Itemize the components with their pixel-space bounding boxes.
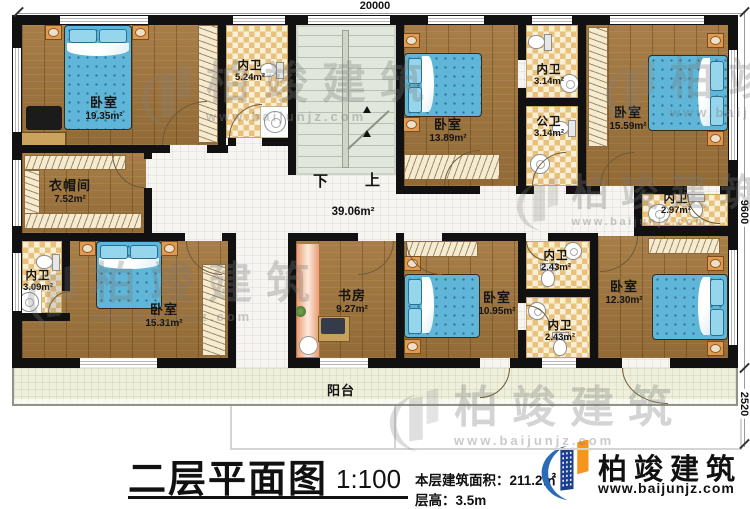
closet bbox=[648, 238, 720, 254]
dimension-line bbox=[744, 13, 745, 447]
bed bbox=[404, 274, 480, 338]
wall-segment bbox=[518, 233, 526, 303]
room-label-bedroom-topleft: 卧室19.35m² bbox=[85, 96, 122, 122]
wall-segment bbox=[510, 358, 542, 368]
room-label-bedroom-botright: 卧室12.30m² bbox=[605, 280, 642, 306]
window bbox=[13, 48, 21, 132]
page-title: 二层平面图 bbox=[128, 448, 328, 503]
wall-segment bbox=[288, 15, 296, 175]
window bbox=[542, 359, 576, 367]
floor-height-text: 层高：3.5m bbox=[415, 489, 486, 509]
bed bbox=[404, 53, 482, 117]
dimension-line bbox=[18, 13, 745, 14]
wall-segment bbox=[396, 186, 480, 194]
floor-plan-page: 卧室19.35m² 内卫5.24m² 卧室13.89m² 内卫3.14m² 公卫… bbox=[0, 0, 750, 509]
room-label-bath-topright: 内卫2.97m² bbox=[661, 193, 691, 217]
window bbox=[308, 16, 390, 24]
wall-segment bbox=[296, 233, 358, 241]
dimension-top: 20000 bbox=[357, 0, 394, 12]
wall-segment bbox=[516, 186, 534, 194]
nightstand bbox=[707, 33, 724, 48]
window bbox=[80, 359, 157, 367]
bed bbox=[96, 241, 162, 309]
nightstand bbox=[403, 117, 420, 132]
wall-segment bbox=[262, 138, 296, 146]
window bbox=[13, 160, 21, 226]
window bbox=[729, 250, 737, 345]
closet bbox=[202, 264, 226, 356]
window bbox=[13, 253, 21, 311]
lower-floor-outline bbox=[394, 406, 396, 448]
nightstand bbox=[79, 241, 96, 256]
wall-segment bbox=[288, 233, 296, 368]
wall-segment bbox=[12, 145, 170, 153]
wall-segment bbox=[518, 330, 526, 368]
wall-segment bbox=[576, 358, 622, 368]
nightstand bbox=[707, 256, 724, 271]
nightstand bbox=[45, 25, 62, 40]
chair bbox=[299, 336, 318, 355]
room-label-balcony: 阳台 bbox=[327, 384, 355, 399]
wall-segment bbox=[62, 233, 70, 291]
wall-segment bbox=[720, 186, 738, 194]
plant bbox=[295, 306, 306, 317]
toilet bbox=[36, 254, 60, 270]
window bbox=[610, 16, 704, 24]
room-label-bedroom-botmid: 卧室10.95m² bbox=[478, 291, 515, 317]
wall-segment bbox=[12, 358, 80, 368]
room-label-bath-topmid: 内卫3.14m² bbox=[534, 64, 564, 88]
dimension-right-lower: 2520 bbox=[738, 389, 750, 419]
stair-arrow-icon bbox=[363, 130, 371, 137]
wall-segment bbox=[526, 289, 590, 297]
wall-segment bbox=[670, 358, 738, 368]
closet bbox=[24, 170, 40, 215]
wall-segment bbox=[368, 358, 480, 368]
wall-segment bbox=[396, 15, 404, 194]
floor-area-text: 本层建筑面积：211.2㎡ bbox=[415, 469, 556, 489]
room-label-cloakroom: 衣帽间7.52m² bbox=[49, 179, 91, 205]
bed bbox=[652, 274, 728, 340]
room-label-bedroom-topright: 卧室15.59m² bbox=[609, 106, 646, 132]
window bbox=[428, 16, 484, 24]
room-label-bath-botleft: 内卫3.09m² bbox=[23, 270, 53, 294]
wall-segment bbox=[566, 186, 600, 194]
wall-segment bbox=[12, 313, 70, 321]
wall-segment bbox=[228, 233, 236, 368]
wall-segment bbox=[548, 233, 590, 241]
wall-segment bbox=[228, 138, 236, 146]
bed bbox=[648, 55, 728, 131]
room-label-bedroom-topmid: 卧室13.89m² bbox=[429, 118, 466, 144]
wall-segment bbox=[590, 233, 598, 368]
wall-segment bbox=[157, 358, 236, 368]
drawing-scale: 1:100 bbox=[336, 464, 401, 495]
room-label-study: 书房9.27m² bbox=[336, 289, 368, 315]
nightstand bbox=[707, 131, 724, 146]
wall-segment bbox=[12, 233, 70, 241]
computer-monitor bbox=[321, 318, 345, 334]
wall-segment bbox=[396, 233, 404, 368]
sink bbox=[264, 111, 286, 133]
window bbox=[729, 50, 737, 160]
room-label-bath-topleft: 内卫5.24m² bbox=[235, 60, 265, 84]
sink bbox=[19, 292, 39, 312]
floor-plan-canvas: 卧室19.35m² 内卫5.24m² 卧室13.89m² 内卫3.14m² 公卫… bbox=[0, 0, 750, 509]
room-label-bath-public: 公卫3.14m² bbox=[534, 116, 564, 140]
toilet bbox=[528, 34, 552, 50]
stair-arrow-icon bbox=[363, 106, 371, 113]
title-underline bbox=[128, 496, 408, 499]
nightstand bbox=[403, 33, 420, 48]
nightstand bbox=[707, 341, 724, 356]
piano bbox=[26, 106, 62, 130]
room-label-bath-botmid2: 内卫2.43m² bbox=[545, 320, 575, 344]
dimension-right-upper: 9600 bbox=[738, 197, 750, 227]
wall-segment bbox=[518, 98, 586, 106]
nightstand bbox=[404, 339, 421, 354]
nightstand bbox=[132, 25, 149, 40]
room-label-bedroom-botleft: 卧室15.31m² bbox=[145, 303, 182, 329]
closet bbox=[24, 213, 142, 229]
closet bbox=[588, 27, 608, 147]
window bbox=[532, 16, 572, 24]
brand-url: www.baijunjz.com bbox=[598, 480, 735, 496]
closet bbox=[24, 155, 126, 170]
stair-up-label: 上 bbox=[365, 169, 380, 190]
wall-segment bbox=[218, 15, 226, 153]
window bbox=[233, 16, 285, 24]
wall-segment bbox=[222, 233, 236, 241]
lower-floor-outline bbox=[230, 406, 742, 450]
wall-segment bbox=[518, 15, 526, 60]
window bbox=[320, 359, 368, 367]
wall-segment bbox=[634, 226, 738, 236]
window bbox=[60, 16, 148, 24]
wall-segment bbox=[442, 233, 518, 241]
stair-down-label: 下 bbox=[313, 170, 328, 191]
room-label-bath-botmid1: 内卫2.43m² bbox=[541, 250, 571, 274]
wall-segment bbox=[207, 145, 228, 153]
title-block: 二层平面图 1:100 本层建筑面积：211.2㎡ 层高：3.5m 柏竣建筑 w… bbox=[0, 440, 750, 509]
nightstand bbox=[161, 241, 178, 256]
hall-area-label: 39.06m² bbox=[332, 206, 375, 218]
wall-segment bbox=[70, 233, 185, 241]
